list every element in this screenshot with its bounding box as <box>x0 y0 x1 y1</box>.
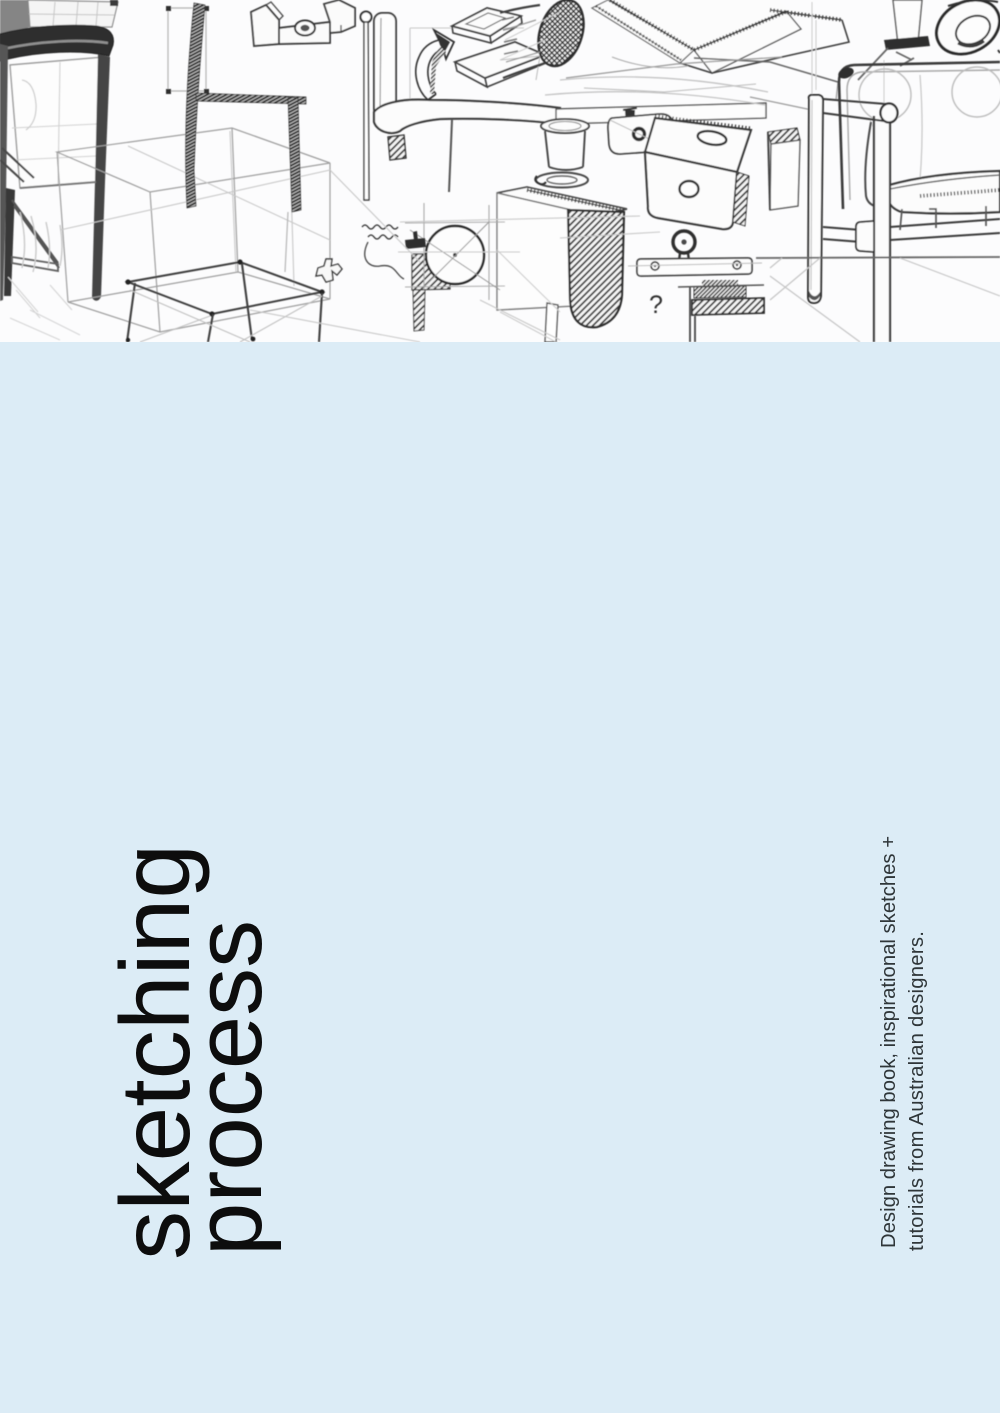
svg-text:?: ? <box>649 291 663 319</box>
